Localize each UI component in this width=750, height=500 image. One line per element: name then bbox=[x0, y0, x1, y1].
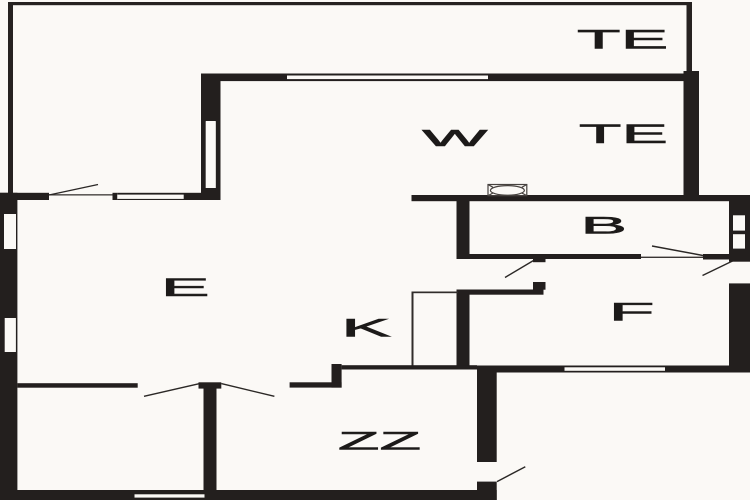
svg-text:TE: TE bbox=[577, 25, 668, 55]
svg-text:ZZ: ZZ bbox=[338, 427, 421, 455]
svg-text:E: E bbox=[161, 273, 210, 301]
svg-text:W: W bbox=[422, 126, 488, 151]
svg-text:B: B bbox=[581, 212, 627, 238]
svg-text:F: F bbox=[609, 298, 655, 326]
svg-text:K: K bbox=[341, 314, 391, 342]
svg-text:TE: TE bbox=[579, 119, 668, 149]
